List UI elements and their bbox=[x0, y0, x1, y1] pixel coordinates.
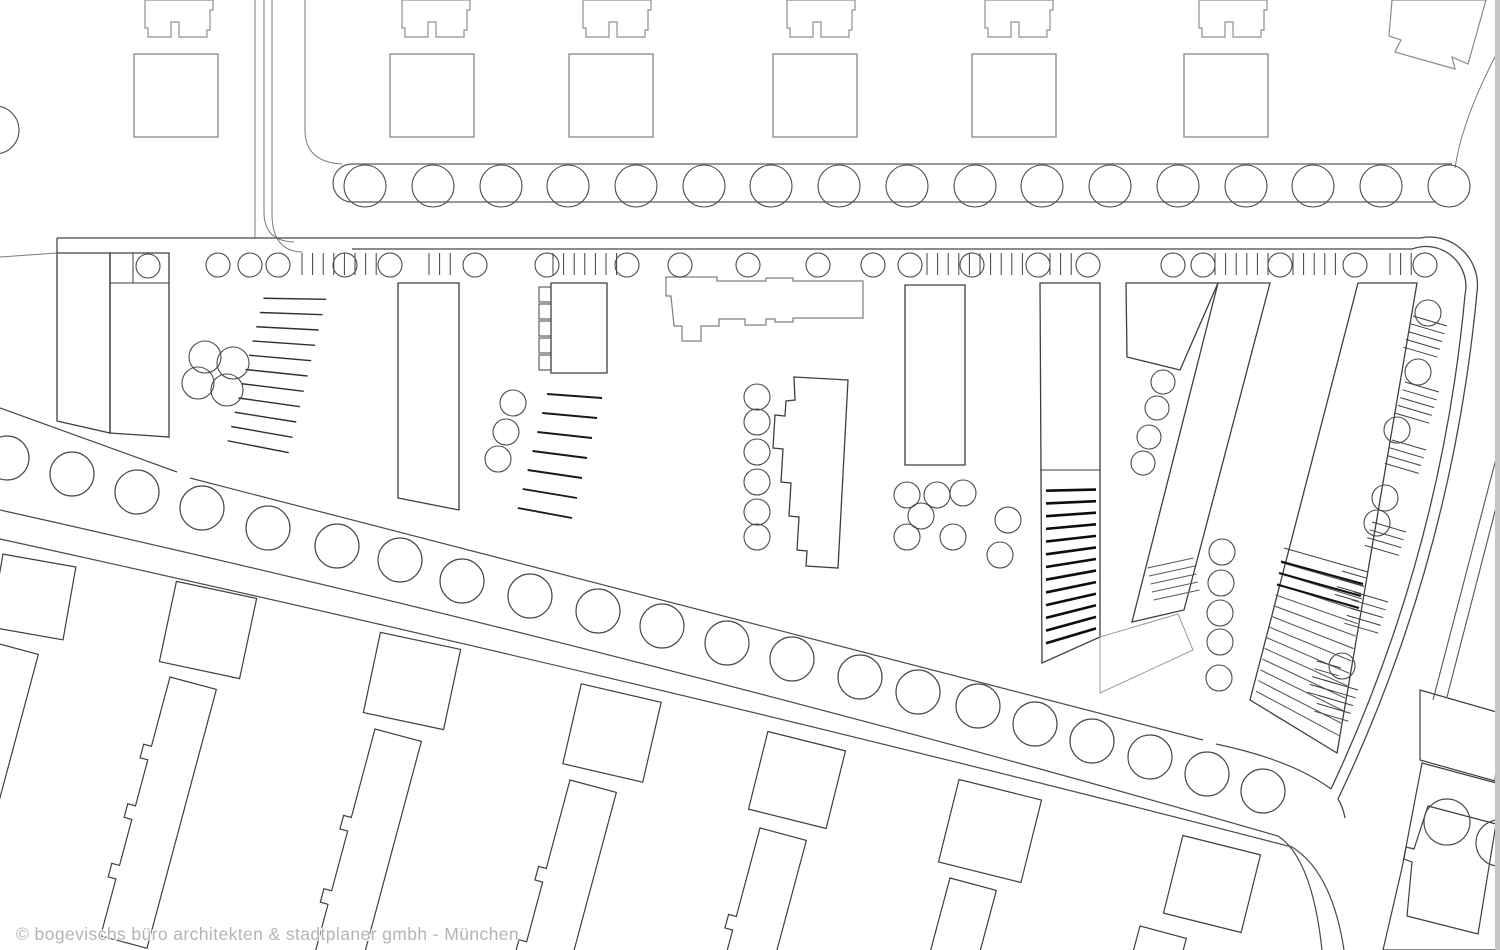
bottom-right-trees bbox=[1424, 799, 1500, 866]
access-roads bbox=[0, 0, 1497, 257]
tree-band-trees bbox=[344, 165, 1470, 207]
diagonal-street-trees bbox=[0, 436, 1285, 813]
strip-boundary bbox=[57, 237, 1478, 818]
top-u-buildings bbox=[145, 0, 1267, 37]
parking-stall-ticks bbox=[302, 253, 1447, 721]
balcony-boxes bbox=[539, 287, 551, 370]
strip-small-trees bbox=[206, 253, 1437, 277]
bottom-right-buildings bbox=[1383, 690, 1500, 950]
copyright-text: © bogevischs büro architekten & stadtpla… bbox=[16, 924, 519, 945]
connector-court bbox=[1100, 614, 1193, 693]
site-plan-canvas bbox=[0, 0, 1500, 950]
strip-slab-buildings bbox=[57, 253, 1417, 753]
bottom-left-slabs bbox=[0, 642, 1186, 950]
top-right-rotated-building bbox=[1389, 0, 1486, 69]
right-edge-bar bbox=[1495, 0, 1500, 950]
diagonal-street bbox=[0, 408, 1344, 950]
top-square-buildings bbox=[134, 54, 1268, 137]
building-detail-lines bbox=[110, 253, 1368, 572]
courtyard-trees bbox=[0, 106, 1441, 691]
tree-band-street bbox=[333, 164, 1452, 202]
bottom-right-roads bbox=[1433, 455, 1500, 700]
site-plan-page: © bogevischs büro architekten & stadtpla… bbox=[0, 0, 1500, 950]
existing-irregular-building bbox=[666, 277, 863, 341]
